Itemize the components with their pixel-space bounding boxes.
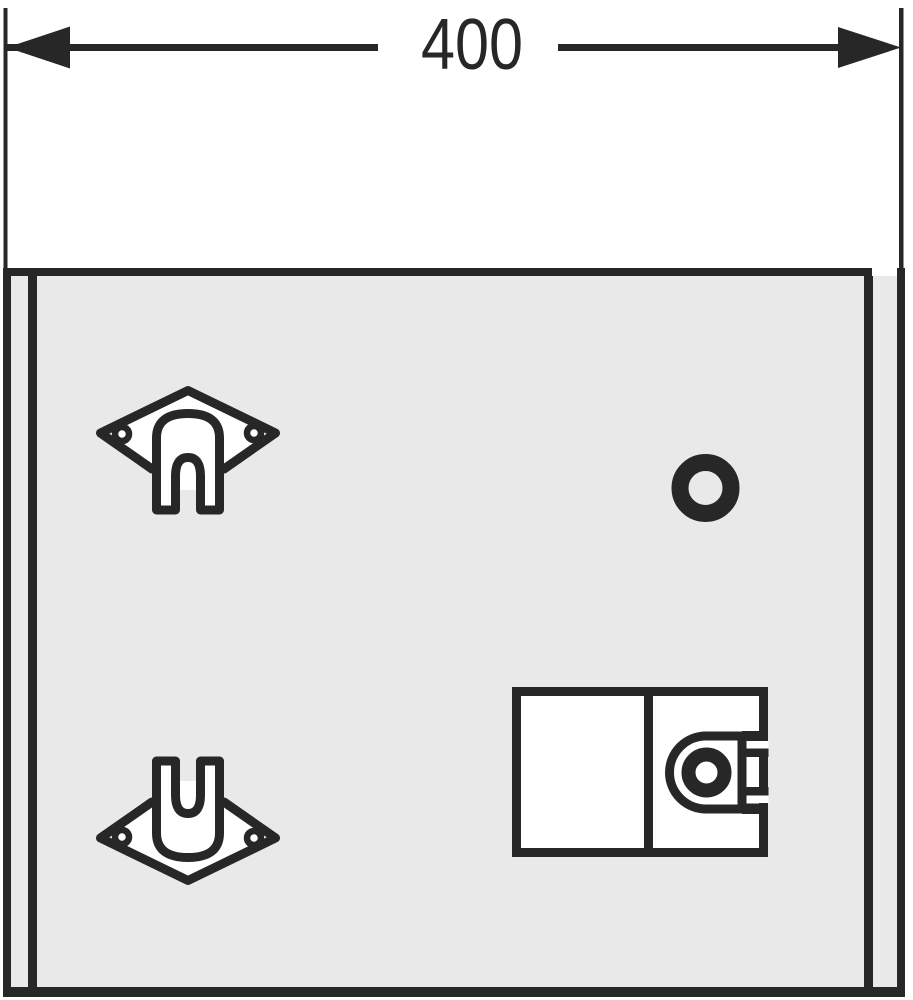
panel-left-wall [3, 268, 11, 997]
dimension-value: 400 [421, 5, 523, 85]
arrowhead-left-icon [7, 27, 70, 69]
panel-surface [11, 276, 897, 987]
cabinet-front-panel [3, 268, 905, 997]
technical-drawing: 400 [0, 0, 913, 1000]
panel-inner-line-left [28, 276, 37, 987]
latch-slot-upper [746, 741, 769, 749]
extension-line-left [4, 8, 8, 270]
width-dimension: 400 [4, 5, 904, 270]
panel-bottom-edge [3, 987, 905, 997]
drawing-canvas: 400 [0, 0, 913, 1000]
panel-right-wall [897, 268, 905, 997]
latch-slot-lower [746, 796, 769, 804]
panel-top-edge [3, 268, 872, 276]
panel-inner-line-right [864, 276, 873, 987]
arrowhead-right-icon [838, 27, 901, 68]
lock-box [517, 692, 769, 853]
dimension-line-right-segment [558, 44, 838, 51]
